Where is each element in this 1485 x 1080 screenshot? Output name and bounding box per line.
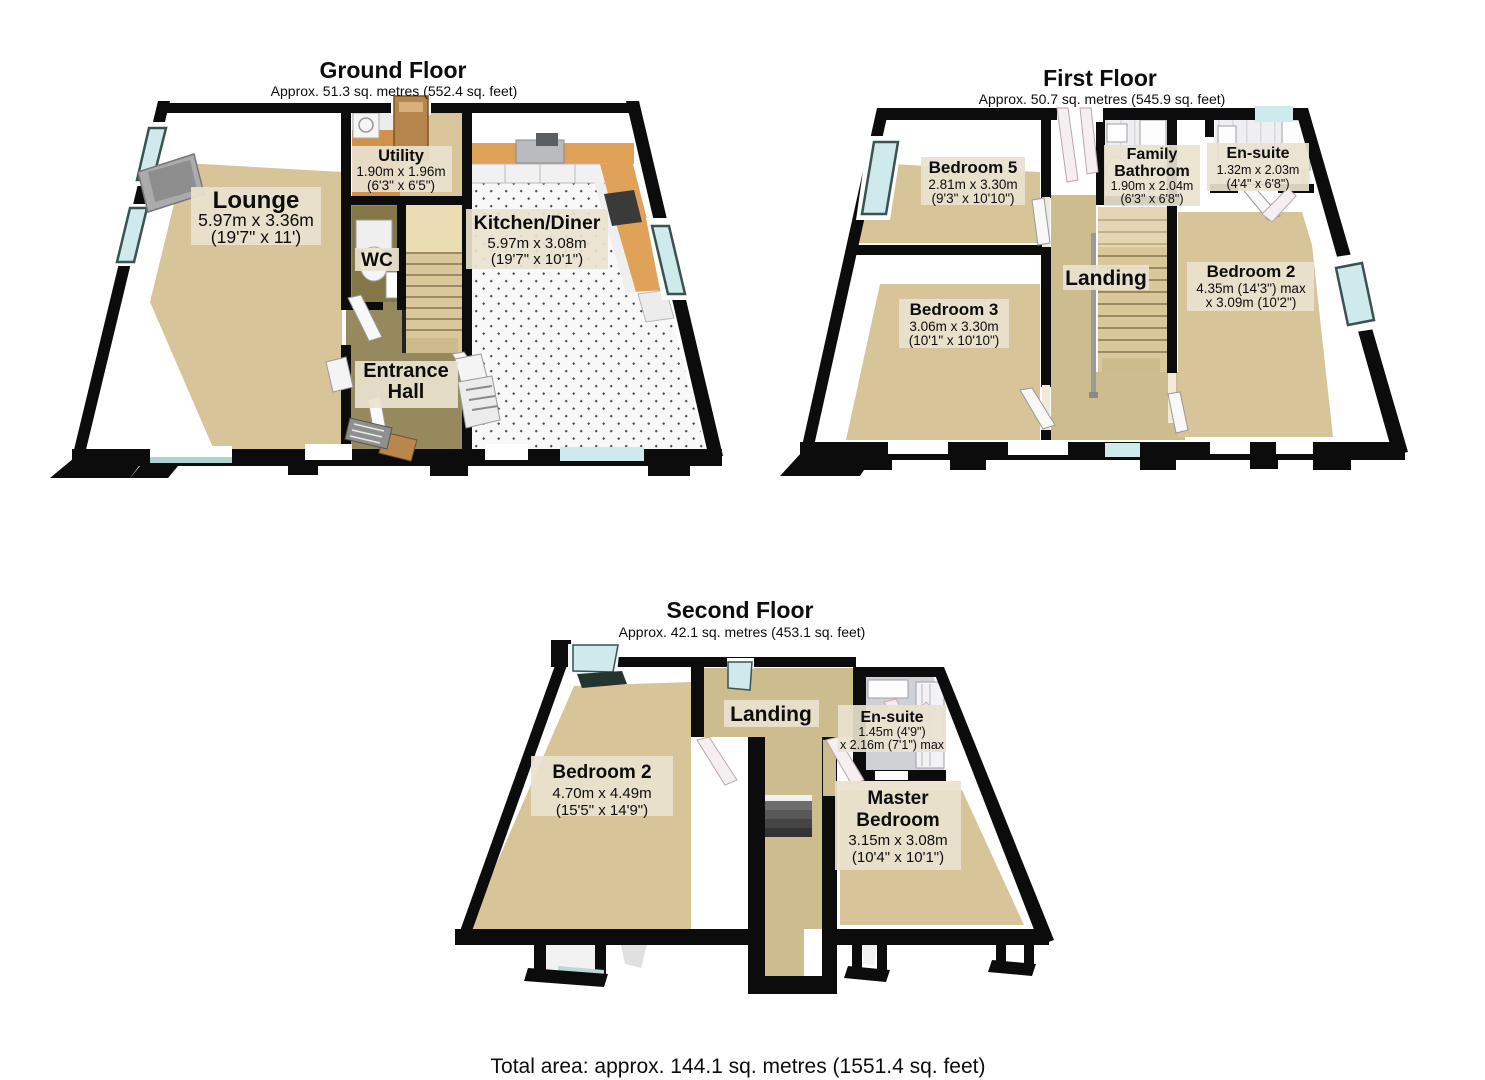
svg-text:(15'5" x 14'9"): (15'5" x 14'9") xyxy=(556,802,648,819)
svg-text:x 3.09m (10'2"): x 3.09m (10'2") xyxy=(1206,295,1297,310)
svg-text:Kitchen/Diner: Kitchen/Diner xyxy=(474,212,601,234)
svg-text:WC: WC xyxy=(361,250,393,271)
svg-text:(9'3" x 10'10"): (9'3" x 10'10") xyxy=(931,191,1014,206)
svg-text:Hall: Hall xyxy=(388,381,425,403)
svg-text:Bedroom 2: Bedroom 2 xyxy=(552,762,651,783)
svg-text:En-suite: En-suite xyxy=(1226,145,1289,162)
svg-text:First Floor: First Floor xyxy=(1043,65,1157,91)
svg-text:Approx. 51.3 sq. metres (552.4: Approx. 51.3 sq. metres (552.4 sq. feet) xyxy=(271,83,518,99)
svg-text:Family: Family xyxy=(1127,146,1178,163)
svg-text:(10'1" x 10'10"): (10'1" x 10'10") xyxy=(909,333,1000,348)
svg-text:En-suite: En-suite xyxy=(860,709,923,726)
svg-text:Ground Floor: Ground Floor xyxy=(320,57,467,83)
svg-text:Bedroom: Bedroom xyxy=(856,810,939,831)
svg-text:(10'4" x 10'1"): (10'4" x 10'1") xyxy=(852,849,944,866)
svg-text:x 2.16m (7'1") max: x 2.16m (7'1") max xyxy=(840,738,945,752)
svg-text:Master: Master xyxy=(867,788,929,809)
svg-text:4.70m x 4.49m: 4.70m x 4.49m xyxy=(552,785,651,802)
svg-text:5.97m x 3.08m: 5.97m x 3.08m xyxy=(487,235,586,252)
svg-text:Landing: Landing xyxy=(730,703,812,726)
svg-text:1.45m (4'9"): 1.45m (4'9") xyxy=(858,725,925,739)
svg-text:Landing: Landing xyxy=(1065,267,1147,290)
svg-text:1.90m x 1.96m: 1.90m x 1.96m xyxy=(356,164,445,179)
svg-text:3.15m x 3.08m: 3.15m x 3.08m xyxy=(848,832,947,849)
svg-text:Utility: Utility xyxy=(378,147,425,165)
svg-text:(6'3" x 6'5"): (6'3" x 6'5") xyxy=(367,178,435,193)
svg-text:4.35m (14'3") max: 4.35m (14'3") max xyxy=(1196,281,1306,296)
svg-text:Bedroom 3: Bedroom 3 xyxy=(910,300,999,319)
svg-text:(19'7" x 10'1"): (19'7" x 10'1") xyxy=(491,251,583,268)
svg-text:Total area: approx. 144.1 sq.: Total area: approx. 144.1 sq. metres (15… xyxy=(491,1055,986,1078)
svg-text:Bathroom: Bathroom xyxy=(1114,163,1190,180)
svg-text:Approx. 50.7 sq. metres (545.9: Approx. 50.7 sq. metres (545.9 sq. feet) xyxy=(979,91,1226,107)
svg-text:Approx. 42.1 sq. metres (453.1: Approx. 42.1 sq. metres (453.1 sq. feet) xyxy=(619,624,866,640)
svg-text:(19'7" x 11'): (19'7" x 11') xyxy=(211,227,301,247)
svg-text:(6'3" x 6'8"): (6'3" x 6'8") xyxy=(1121,192,1184,206)
svg-text:1.32m x 2.03m: 1.32m x 2.03m xyxy=(1217,163,1300,177)
svg-text:(4'4" x 6'8"): (4'4" x 6'8") xyxy=(1227,177,1290,191)
svg-text:Bedroom 5: Bedroom 5 xyxy=(929,158,1018,177)
svg-text:Second Floor: Second Floor xyxy=(667,597,814,623)
svg-text:1.90m x 2.04m: 1.90m x 2.04m xyxy=(1111,179,1194,193)
svg-text:Bedroom 2: Bedroom 2 xyxy=(1207,262,1296,281)
svg-text:3.06m x 3.30m: 3.06m x 3.30m xyxy=(909,319,998,334)
svg-text:2.81m x 3.30m: 2.81m x 3.30m xyxy=(928,177,1017,192)
svg-text:Entrance: Entrance xyxy=(363,360,449,382)
